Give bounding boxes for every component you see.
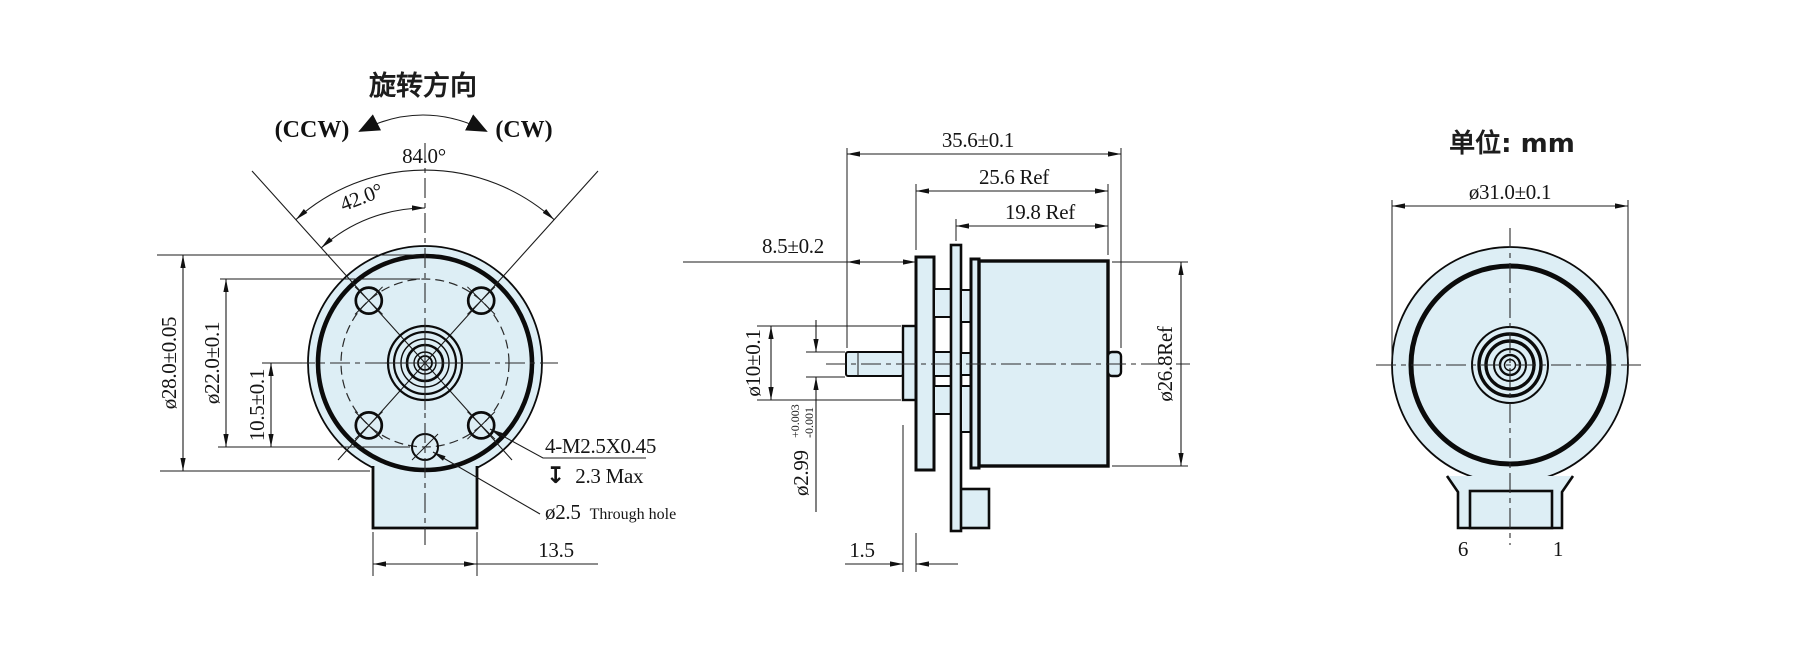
angle-arc-42 — [321, 208, 425, 248]
unit-note: 单位: mm — [1449, 128, 1575, 159]
hole-offset-label: 10.5±0.1 — [245, 369, 269, 441]
standoff — [934, 386, 951, 414]
through-hole-note-label: Through hole — [590, 506, 677, 523]
svg-text:ø2.5 Through hole: ø2.5 Through hole — [545, 500, 676, 524]
rotation-direction-title: 旋转方向 — [369, 70, 477, 102]
rear-tab — [959, 489, 989, 528]
front-view: 旋转方向 (CCW) (CW) — [157, 70, 676, 576]
depth-note-label: 2.3 Max — [575, 464, 644, 488]
dim-shaft-diameter: ø2.99 +0.003 -0.001 — [788, 320, 845, 512]
dim-rear-length: 19.8 Ref — [956, 200, 1108, 241]
dim-hole-offset: 10.5±0.1 — [245, 363, 302, 447]
shaft-tol-lower-label: -0.001 — [802, 407, 816, 438]
rear-view: 单位: mm ø31.0±0.1 6 1 — [1376, 128, 1645, 561]
pcb-plate — [951, 245, 961, 531]
boss-diameter-label: ø10±0.1 — [741, 329, 765, 396]
pin-1-label: 1 — [1553, 537, 1563, 561]
shaft-tol-upper-label: +0.003 — [788, 404, 802, 438]
flange-gap-label: 1.5 — [849, 538, 874, 562]
ccw-label: (CCW) — [275, 117, 350, 143]
side-view-body — [846, 245, 1121, 531]
drawing-svg: 旋转方向 (CCW) (CW) — [0, 0, 1800, 655]
angle-84-label: 84.0° — [402, 144, 446, 168]
depth-symbol: ↧ — [546, 463, 565, 489]
tab-width-label: 13.5 — [538, 538, 574, 562]
standoff — [934, 289, 951, 317]
rotation-direction-arrow — [360, 115, 486, 131]
dim-flange-gap: 1.5 — [845, 425, 958, 572]
dia-body-label: ø28.0±0.05 — [157, 317, 181, 410]
dim-shaft-extension: 8.5±0.2 — [683, 234, 916, 262]
svg-text:↧ 2.3 Max: ↧ 2.3 Max — [546, 463, 644, 489]
rear-flange-diameter-label: ø31.0±0.1 — [1469, 180, 1551, 204]
total-length-label: 35.6±0.1 — [942, 128, 1014, 152]
dia-bolt-circle-label: ø22.0±0.1 — [200, 322, 224, 404]
rear-connector-socket — [1470, 491, 1552, 528]
body-diameter-side-label: ø26.8Ref — [1153, 326, 1177, 401]
screw-spec-label: 4-M2.5X0.45 — [545, 434, 656, 458]
dim-tab-width: 13.5 — [373, 532, 598, 576]
boss — [903, 326, 916, 400]
shaft-extension-label: 8.5±0.2 — [762, 234, 824, 258]
shaft-diameter-label: ø2.99 — [789, 450, 813, 496]
engineering-drawing: 旋转方向 (CCW) (CW) — [0, 0, 1800, 655]
through-hole-dia-label: ø2.5 — [545, 500, 581, 524]
body-length-label: 25.6 Ref — [979, 165, 1049, 189]
pin-6-label: 6 — [1458, 537, 1468, 561]
cw-label: (CW) — [495, 117, 552, 143]
angle-42-label: 42.0° — [337, 178, 386, 216]
side-view: 35.6±0.1 25.6 Ref 19.8 Ref 8.5±0.2 ø10±0… — [683, 128, 1190, 572]
rear-length-label: 19.8 Ref — [1005, 200, 1075, 224]
